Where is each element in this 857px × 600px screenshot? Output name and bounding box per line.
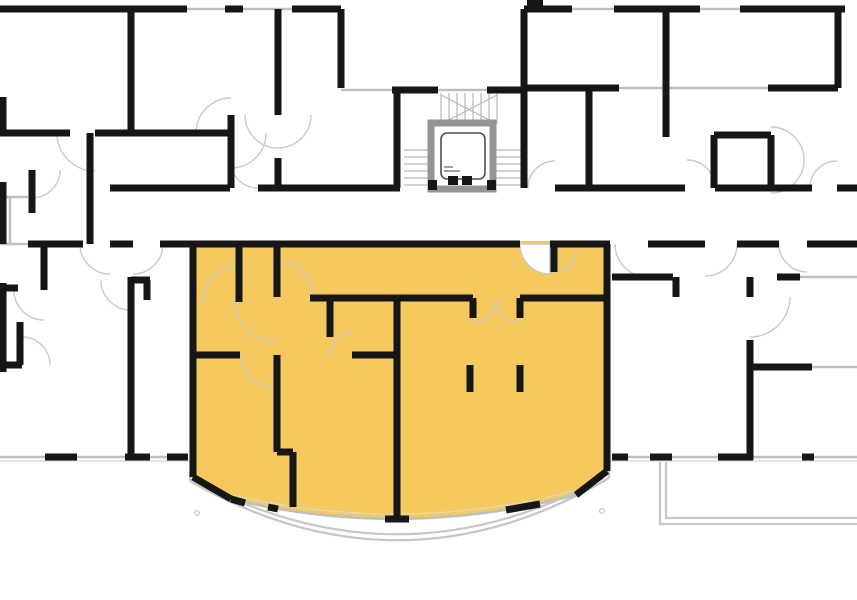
door-swing-arc <box>133 244 163 274</box>
door-swing-arc <box>196 98 231 133</box>
door-swing-arc <box>528 161 555 188</box>
door-swing-arc <box>771 127 804 160</box>
door-swing-arc <box>32 170 60 198</box>
elevator-door-tick <box>448 176 458 185</box>
elevator-car <box>441 133 485 179</box>
wall-segment <box>268 507 278 509</box>
door-swing-arc <box>14 290 44 320</box>
balcony-rail <box>660 462 857 524</box>
shaft-corner-mark <box>487 180 496 190</box>
door-swing-arc <box>779 244 807 272</box>
elevator-door-tick <box>462 176 472 185</box>
door-swing-arc <box>80 244 110 274</box>
balcony-post <box>600 509 605 514</box>
door-swing-arc <box>245 115 278 148</box>
shaft-corner-mark <box>428 180 437 190</box>
door-swing-arc <box>705 244 737 276</box>
floor-plan-canvas <box>0 0 857 600</box>
door-swing-arc <box>231 133 266 168</box>
balcony-rail <box>666 462 857 518</box>
door-swing-arc <box>810 161 837 188</box>
wall-segment <box>231 499 245 503</box>
door-swing-arc <box>750 297 790 337</box>
elevator <box>428 123 496 190</box>
door-swing-arc <box>101 280 131 310</box>
door-swing-arc <box>278 115 311 148</box>
door-swing-arc <box>22 337 50 365</box>
floor-plan <box>0 0 857 600</box>
door-swing-arc <box>615 244 648 277</box>
balcony-post <box>195 511 200 516</box>
